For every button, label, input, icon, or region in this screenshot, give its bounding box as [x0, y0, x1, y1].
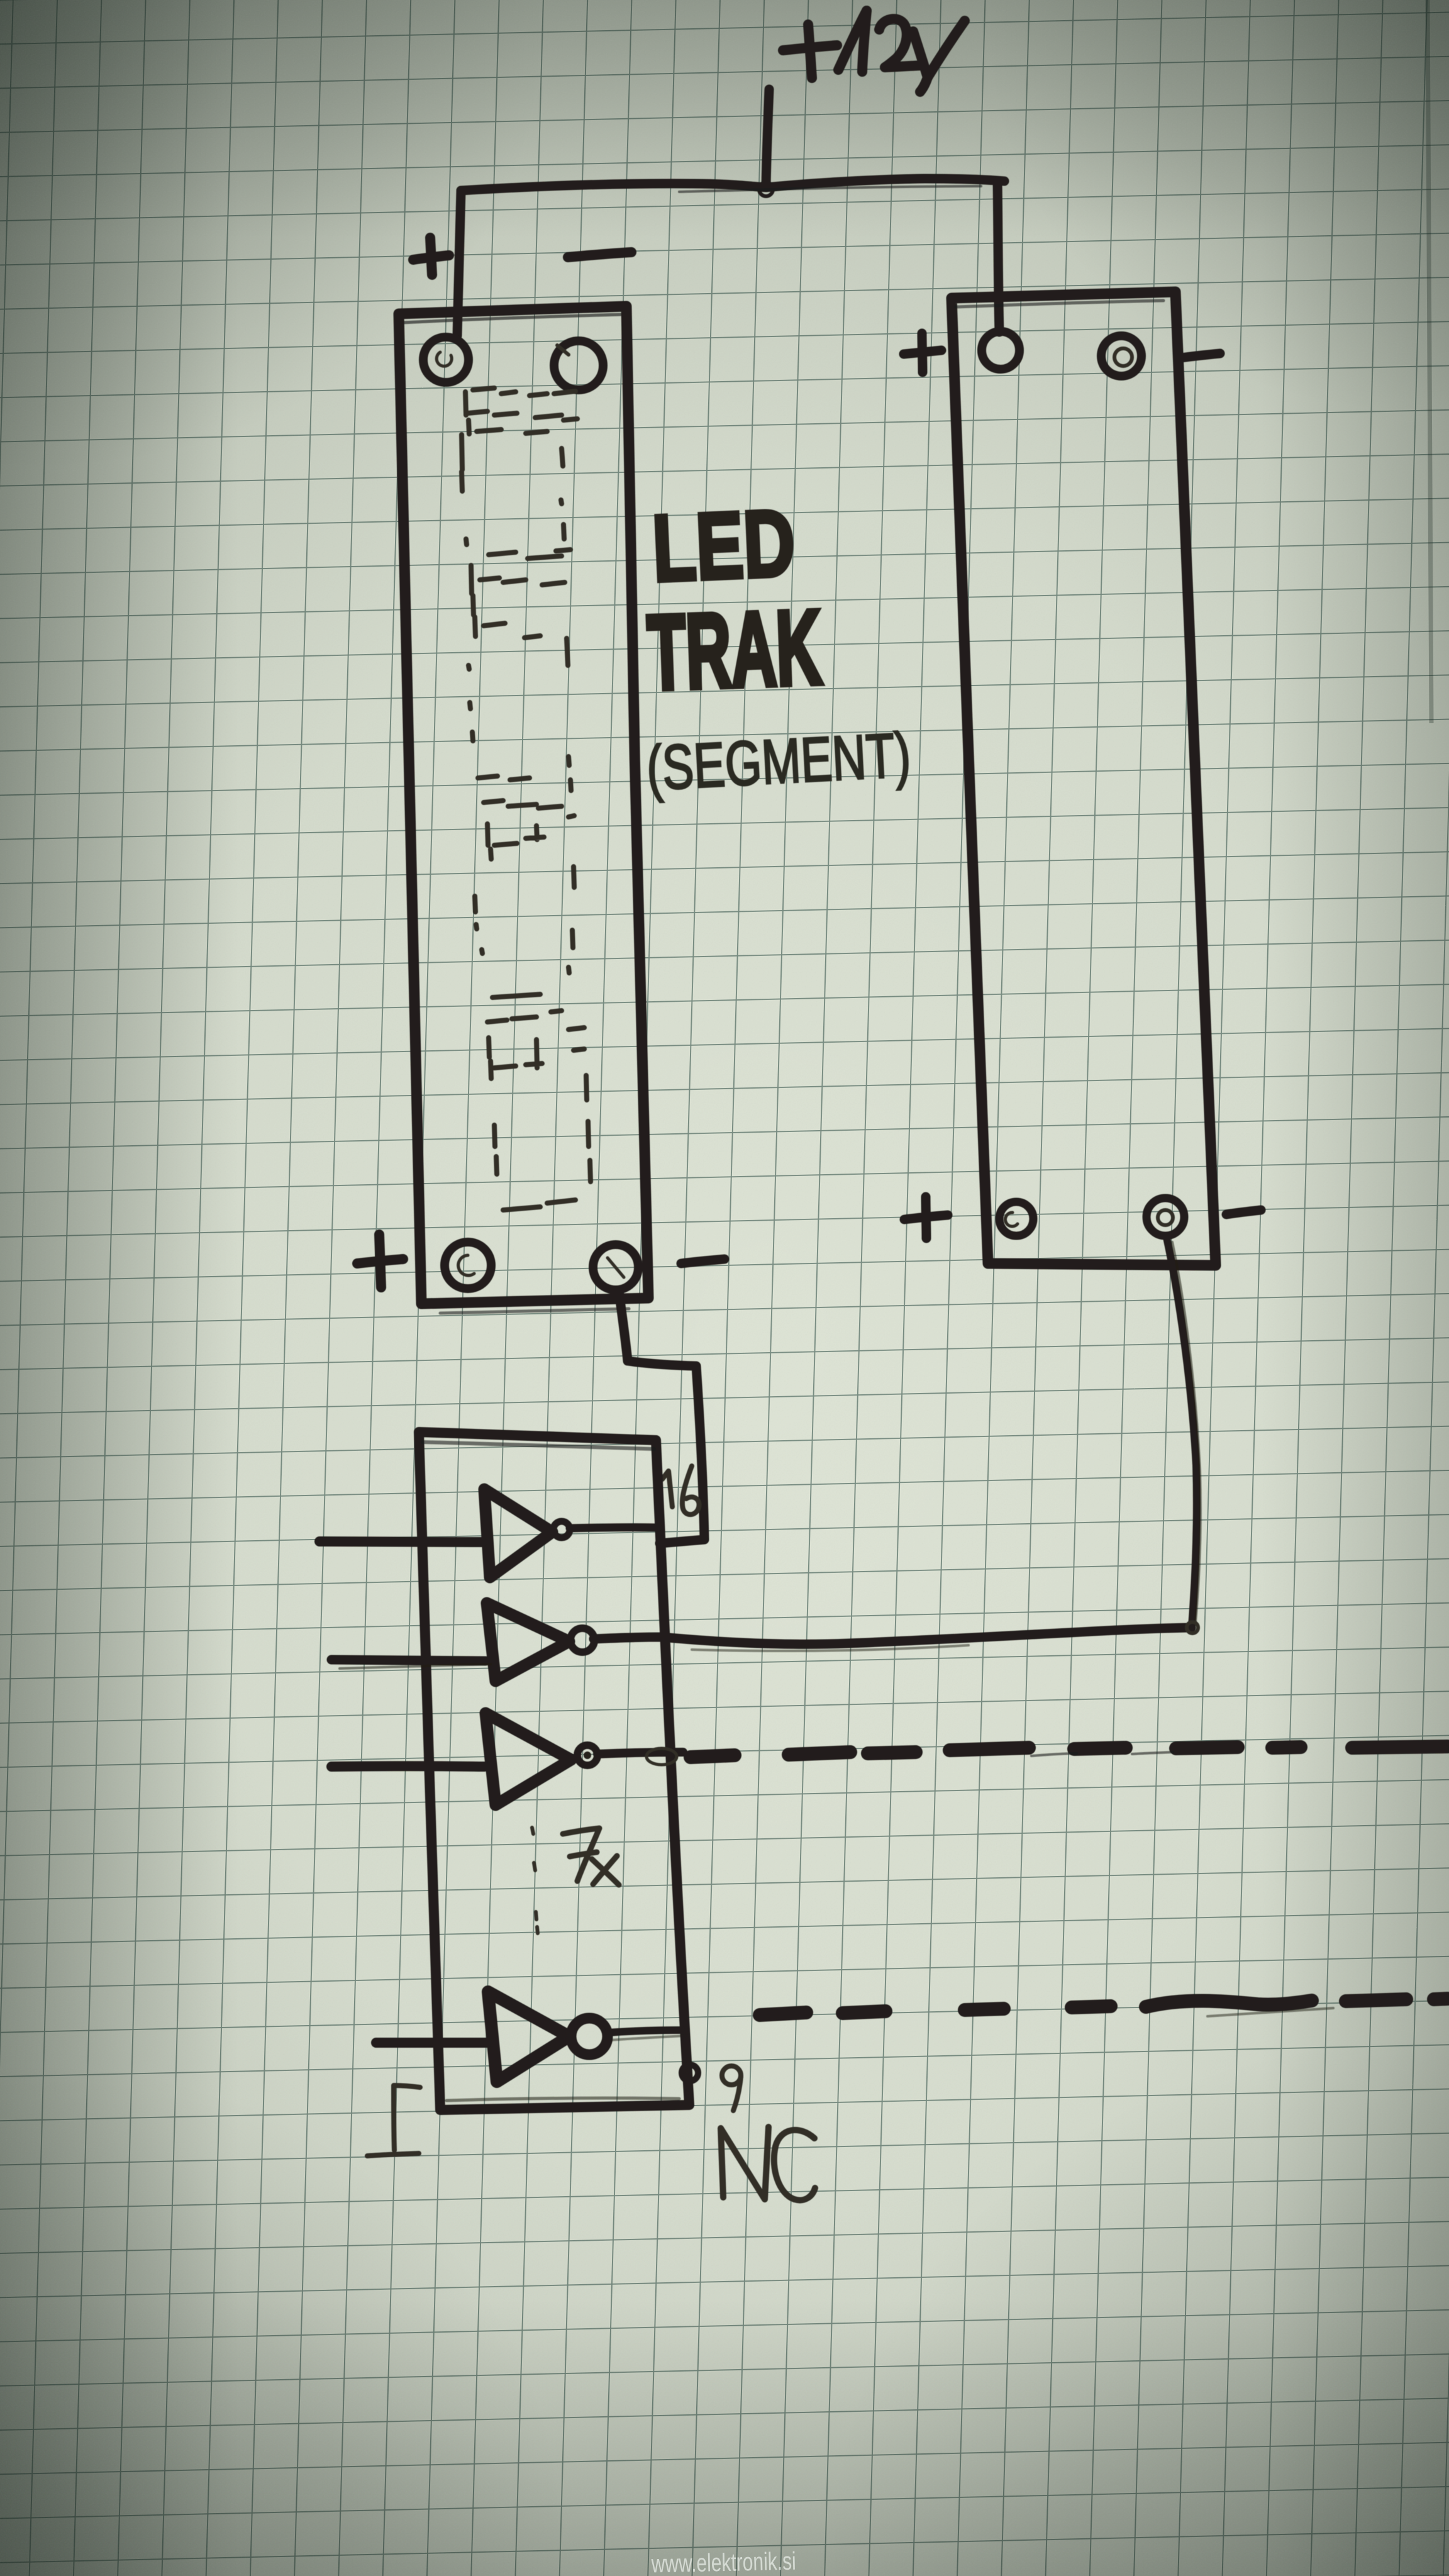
- svg-text:www.elektronik.si: www.elektronik.si: [651, 2548, 797, 2576]
- svg-text:TRAK: TRAK: [646, 587, 823, 712]
- svg-text:LED: LED: [650, 489, 797, 601]
- svg-text:(SEGMENT): (SEGMENT): [645, 719, 912, 804]
